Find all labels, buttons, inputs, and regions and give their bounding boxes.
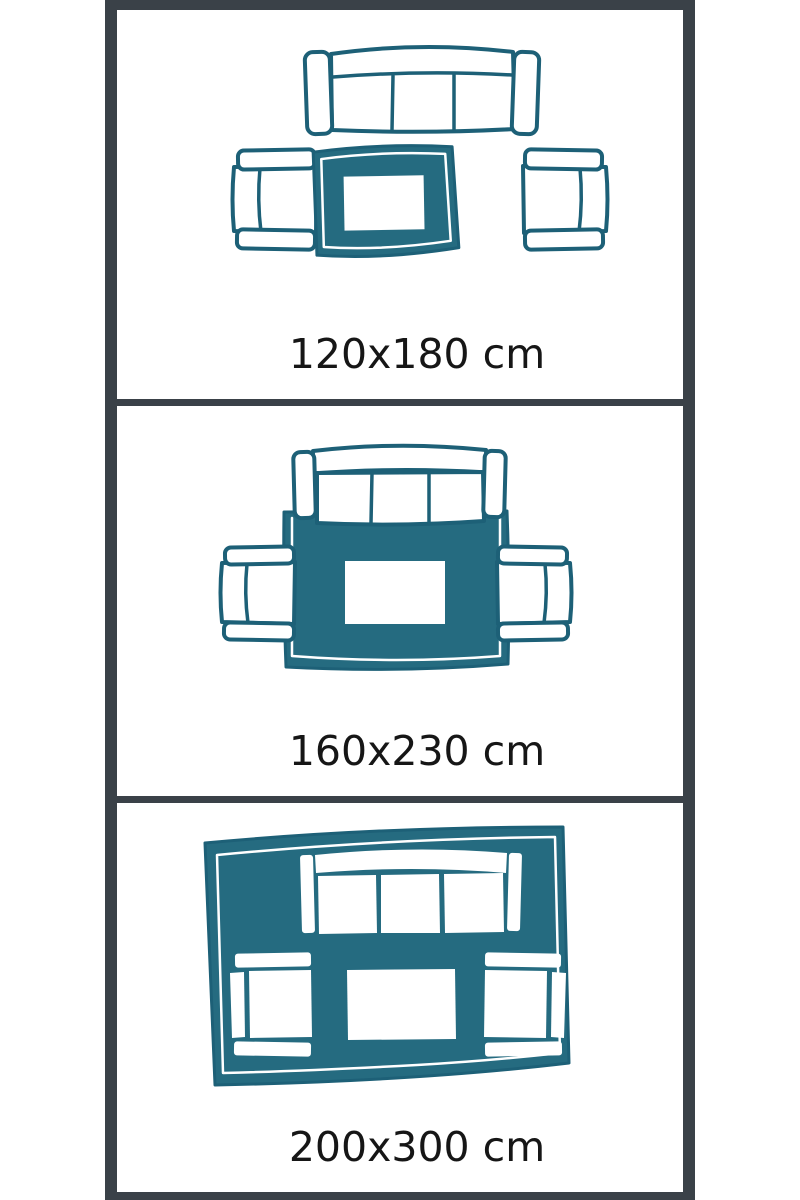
guide-frame: 120x180 cm (105, 0, 695, 1200)
coffee-table-icon (345, 561, 445, 624)
coffee-table-icon (344, 175, 425, 230)
sofa-icon (300, 849, 522, 934)
size-label-200x300: 200x300 cm (289, 1125, 545, 1170)
rug-size-illustration-160x230 (117, 406, 683, 706)
armchair-left-icon (221, 547, 296, 641)
panel-rug-160x230: 160x230 cm (117, 406, 683, 795)
size-label-160x230: 160x230 cm (289, 729, 545, 774)
rug-icon (313, 145, 459, 258)
armchair-right-icon (497, 547, 572, 641)
panel-rug-200x300: 200x300 cm (117, 803, 683, 1192)
size-label-120x180: 120x180 cm (289, 332, 545, 377)
rug-size-illustration-200x300 (117, 803, 683, 1105)
armchair-left-icon (233, 149, 318, 249)
rug-size-illustration-120x180 (117, 10, 683, 310)
coffee-table-icon (347, 969, 456, 1040)
rug-size-guide: 120x180 cm (0, 0, 800, 1200)
sofa-icon (305, 47, 540, 134)
rug-icon (284, 511, 509, 669)
panel-rug-120x180: 120x180 cm (117, 10, 683, 399)
armchair-right-icon (523, 149, 608, 249)
